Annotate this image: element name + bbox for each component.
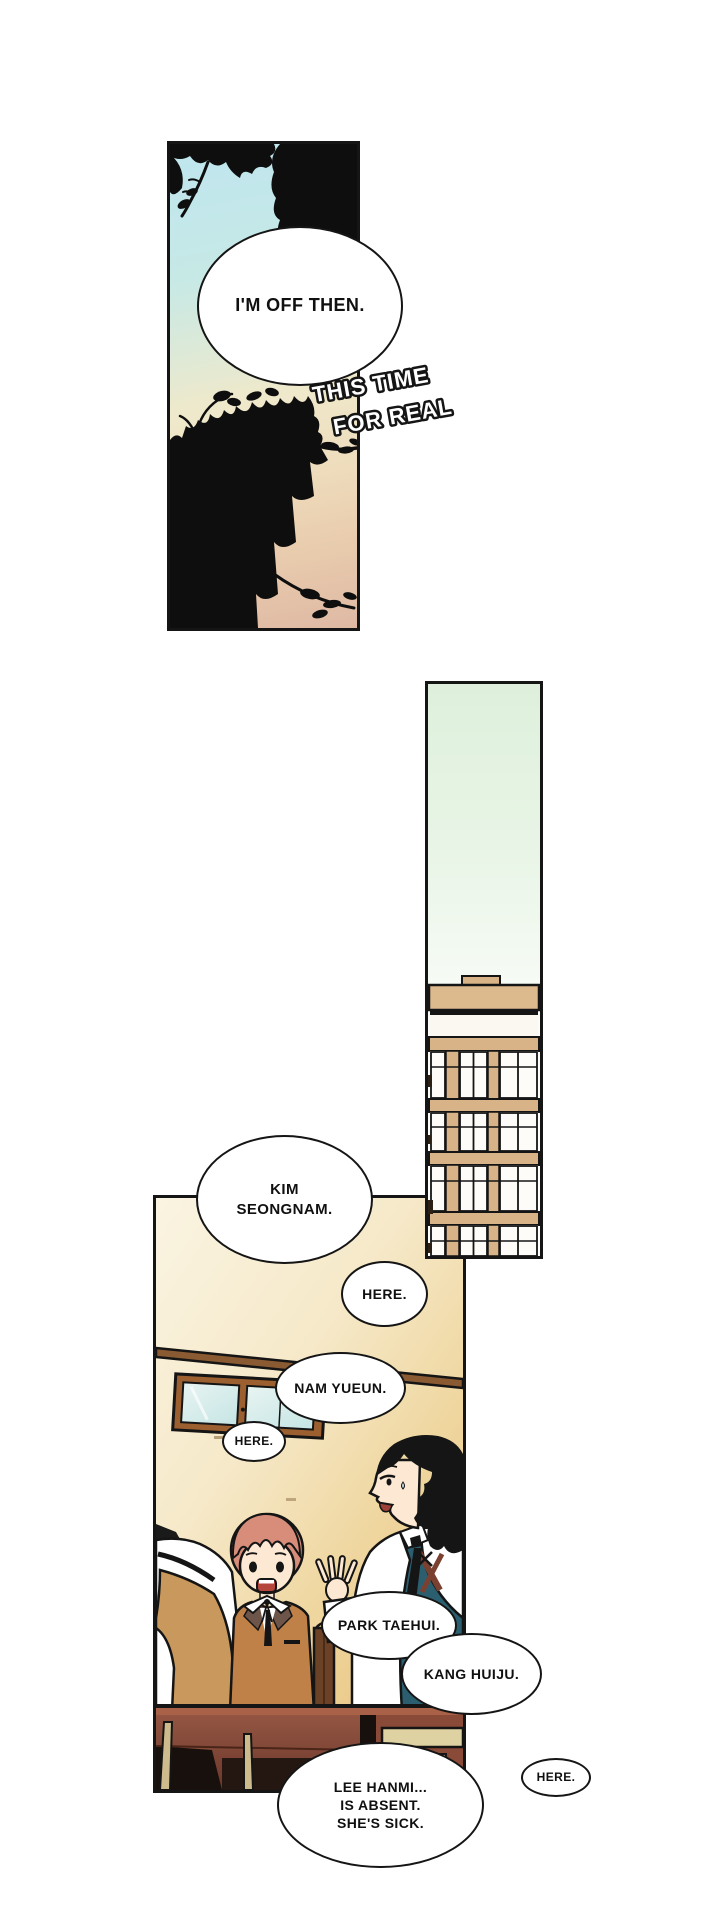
red-haired-boy	[230, 1514, 314, 1711]
panel-school-building	[425, 681, 543, 1259]
speech-bubble-here-3: HERE.	[521, 1758, 591, 1797]
bubble-text: PARK TAEHUI.	[338, 1616, 440, 1634]
speech-bubble-kim-seongnam: KIM SEONGNAM.	[196, 1135, 373, 1264]
speech-bubble-here-1: HERE.	[341, 1261, 428, 1327]
bubble-text-line: SHE'S SICK.	[337, 1814, 424, 1832]
bubble-text: KANG HUIJU.	[424, 1665, 519, 1683]
bubble-text: NAM YUEUN.	[294, 1379, 386, 1397]
bubble-text-line: SEONGNAM.	[236, 1200, 332, 1220]
bubble-text-line: LEE HANMI...	[334, 1778, 427, 1796]
bubble-text-line: IS ABSENT.	[340, 1796, 421, 1814]
bubble-text-line: KIM	[270, 1180, 299, 1200]
speech-bubble-lee-hanmi: LEE HANMI... IS ABSENT. SHE'S SICK.	[277, 1742, 484, 1868]
bubble-text: HERE.	[537, 1770, 576, 1786]
speech-bubble-im-off-then: I'M OFF THEN.	[197, 226, 403, 386]
bubble-text: HERE.	[235, 1434, 274, 1450]
speech-bubble-nam-yueun: NAM YUEUN.	[275, 1352, 406, 1424]
bubble-text: HERE.	[362, 1285, 407, 1303]
speech-bubble-here-2: HERE.	[222, 1421, 286, 1462]
building-art	[428, 975, 540, 1256]
bubble-text: I'M OFF THEN.	[235, 294, 364, 317]
webtoon-page: I'M OFF THEN. THIS TIME FOR REAL	[0, 0, 720, 1911]
speech-bubble-kang-huiju: KANG HUIJU.	[401, 1633, 542, 1715]
